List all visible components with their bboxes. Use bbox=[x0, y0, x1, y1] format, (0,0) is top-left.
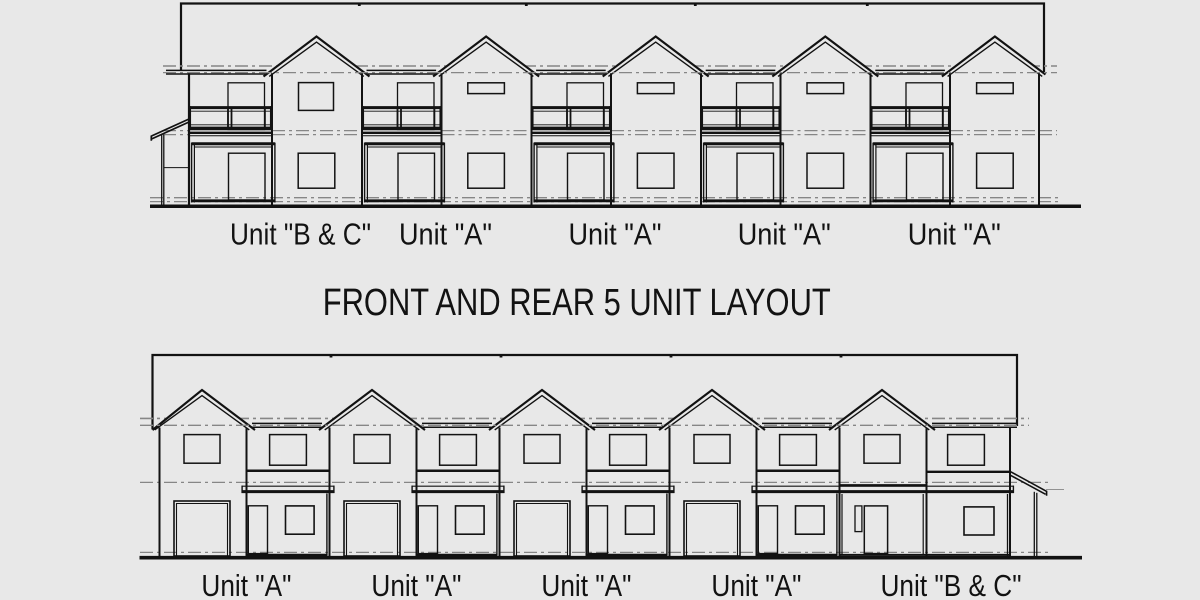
svg-text:Unit "A": Unit "A" bbox=[541, 568, 631, 600]
svg-text:Unit "B & C": Unit "B & C" bbox=[230, 217, 371, 252]
svg-text:Unit "A": Unit "A" bbox=[711, 568, 801, 600]
svg-text:Unit "A": Unit "A" bbox=[569, 217, 662, 252]
svg-text:Unit "B & C": Unit "B & C" bbox=[881, 568, 1022, 600]
svg-text:Unit "A": Unit "A" bbox=[399, 217, 492, 252]
svg-text:Unit "A": Unit "A" bbox=[908, 217, 1001, 252]
svg-text:FRONT AND REAR 5 UNIT LAYOUT: FRONT AND REAR 5 UNIT LAYOUT bbox=[323, 282, 831, 324]
svg-text:Unit "A": Unit "A" bbox=[201, 568, 291, 600]
svg-text:Unit "A": Unit "A" bbox=[738, 217, 831, 252]
svg-text:Unit "A": Unit "A" bbox=[371, 568, 461, 600]
